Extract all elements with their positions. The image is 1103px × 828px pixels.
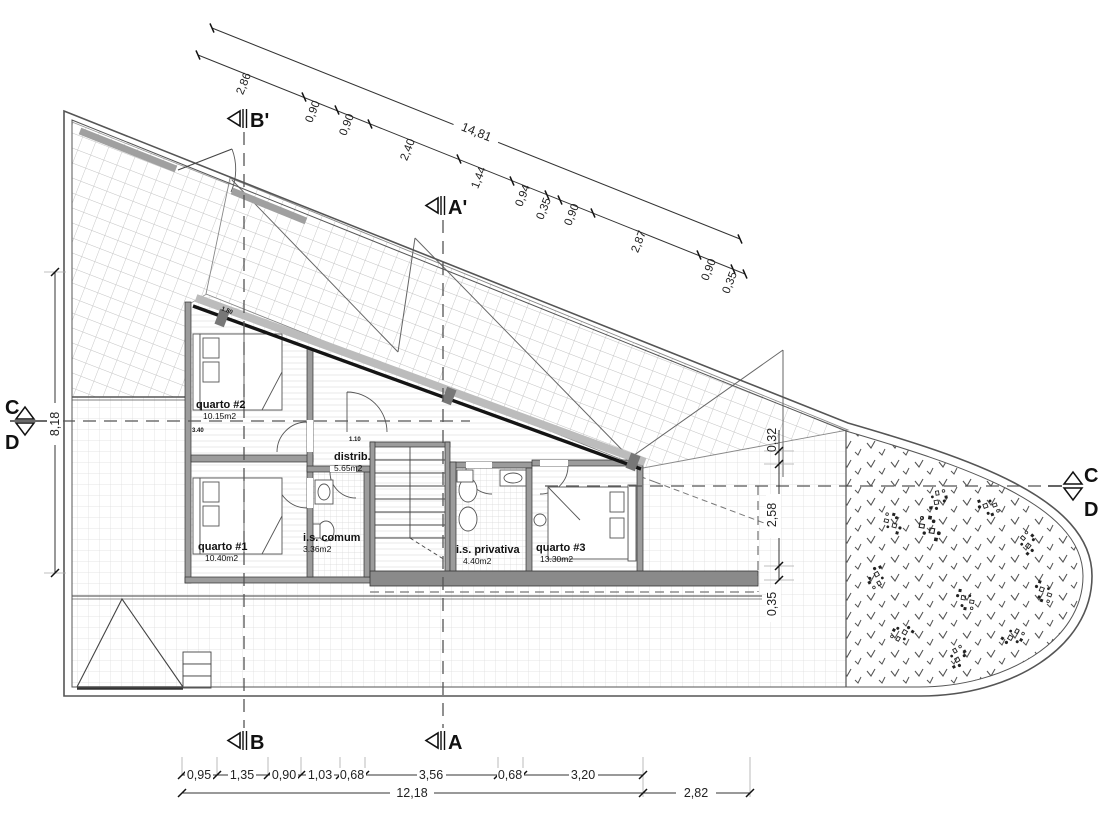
dim-right-0: 0,32: [765, 428, 779, 452]
svg-text:1,03: 1,03: [308, 768, 332, 782]
svg-text:0,35: 0,35: [720, 270, 739, 295]
room-label-privativa: i.s. privativa: [456, 544, 520, 556]
svg-text:0,95: 0,95: [187, 768, 211, 782]
svg-text:1,35: 1,35: [230, 768, 254, 782]
wall-comum-east: [364, 470, 370, 577]
room-area-comum: 3.36m2: [303, 544, 332, 554]
dim-total-bottom: 12,18: [396, 786, 427, 800]
svg-text:0,90: 0,90: [699, 257, 718, 282]
floor-plan-svg: B' A' B A C D C: [0, 0, 1103, 828]
section-label-c-right: C: [1084, 465, 1098, 487]
svg-text:2,86: 2,86: [234, 71, 253, 96]
dim-chain-bottom: 0,95 1,35 0,90 1,03 0,68 3,56 0,68 3,20 …: [178, 757, 754, 800]
room-area-distrib: 5.65m2: [334, 463, 363, 473]
marker-cd-right: C D: [1048, 465, 1098, 521]
room-label-quarto3: quarto #3: [536, 542, 586, 554]
entry-steps: [183, 652, 211, 688]
marker-b-bottom: B: [228, 731, 264, 754]
dim-bottom-right: 2,82: [684, 786, 708, 800]
section-label-c-left: C: [5, 397, 19, 419]
dim-total-top-bg: 14,81: [451, 116, 501, 148]
wall-priv-east: [526, 468, 532, 577]
svg-text:0,94: 0,94: [513, 183, 533, 209]
wall-priv-west: [450, 462, 456, 577]
svg-text:0,68: 0,68: [340, 768, 364, 782]
terrace-slab: [370, 571, 758, 586]
room-area-quarto2: 10.15m2: [203, 411, 236, 421]
section-label-a-top: A': [448, 197, 467, 219]
svg-text:2,40: 2,40: [398, 137, 417, 162]
svg-text:3,56: 3,56: [419, 768, 443, 782]
wall-dim-stair: 1.10: [349, 437, 361, 443]
marker-a-bottom: A: [426, 731, 462, 754]
dim-total-top: 14,81: [459, 120, 493, 145]
wall-stair-east: [445, 442, 450, 577]
dim-left: 8,18: [44, 268, 66, 577]
dim-right-1: 2,58: [765, 503, 779, 527]
svg-text:0,90: 0,90: [337, 112, 356, 137]
wall-east: [637, 462, 643, 583]
dim-ext-bottom: [182, 757, 750, 797]
section-label-b-bottom: B: [250, 732, 264, 754]
dim-labels-bottom: 0,95 1,35 0,90 1,03 0,68 3,56 0,68 3,20 …: [185, 768, 716, 800]
wall-west: [185, 302, 191, 583]
section-label-d-right: D: [1084, 499, 1098, 521]
wall-dim-q2: 3.40: [192, 428, 204, 434]
dim-right-2: 0,35: [765, 592, 779, 616]
floor-plan-canvas: B' A' B A C D C: [0, 0, 1103, 828]
svg-text:0,90: 0,90: [562, 202, 581, 227]
svg-text:0,35: 0,35: [534, 196, 553, 221]
room-label-comum: i.s. comum: [303, 532, 361, 544]
wall-stair-north: [370, 442, 450, 447]
svg-text:0,68: 0,68: [498, 768, 522, 782]
wall-q2-q1: [191, 455, 313, 462]
marker-a-top: A': [426, 196, 467, 219]
section-label-b-top: B': [250, 110, 269, 132]
svg-text:1,44: 1,44: [469, 165, 489, 191]
svg-text:3,20: 3,20: [571, 768, 595, 782]
room-area-quarto3: 13.30m2: [540, 554, 573, 564]
room-area-privativa: 4.40m2: [463, 556, 492, 566]
room-label-quarto1: quarto #1: [198, 541, 248, 553]
wall-stair-west: [370, 442, 375, 577]
svg-text:0,90: 0,90: [303, 99, 322, 124]
svg-text:2,87: 2,87: [629, 229, 648, 254]
section-label-a-bottom: A: [448, 732, 462, 754]
marker-b-top: B': [228, 109, 269, 132]
room-label-quarto2: quarto #2: [196, 399, 246, 411]
svg-text:0,90: 0,90: [272, 768, 296, 782]
room-label-distrib: distrib.: [334, 451, 371, 463]
dim-left-height: 8,18: [48, 412, 62, 436]
room-area-quarto1: 10.40m2: [205, 553, 238, 563]
section-label-d-left: D: [5, 432, 19, 454]
